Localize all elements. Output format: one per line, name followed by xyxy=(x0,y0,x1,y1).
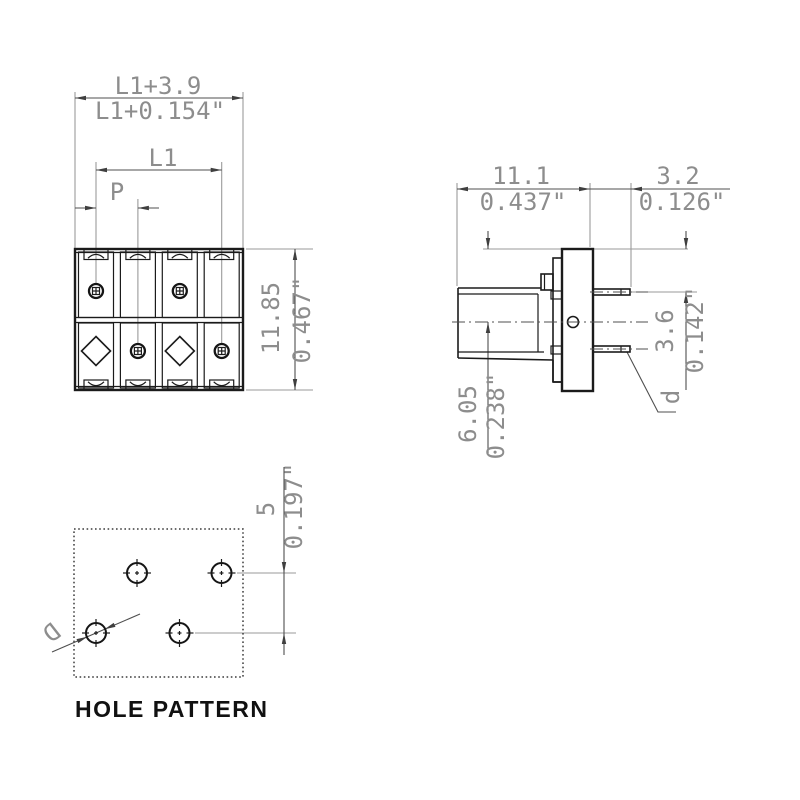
screw-icon xyxy=(131,344,145,358)
dimension-texts: L1+3.9 L1+0.154" L1 P 11.85 0.467" 11.1 … xyxy=(37,72,726,647)
drill-hole xyxy=(123,559,151,587)
dim-hole-row-spacing-mm: 5 xyxy=(252,502,280,516)
diamond-marker xyxy=(165,337,194,366)
dim-side-depth-mm: 11.1 xyxy=(492,162,550,190)
dim-front-pole-span: L1 xyxy=(149,144,178,172)
shroud xyxy=(458,288,562,382)
dim-side-pin-length-mm: 3.2 xyxy=(656,162,699,190)
drill-hole xyxy=(82,619,110,647)
arrowheads xyxy=(75,96,688,644)
dim-front-pitch: P xyxy=(110,178,124,206)
screw-icon xyxy=(215,344,229,358)
screw-icon xyxy=(89,284,103,298)
dim-front-height-in: 0.467" xyxy=(288,277,316,364)
flange-plate xyxy=(553,258,562,382)
board-outline xyxy=(74,529,243,677)
drill-hole xyxy=(208,559,236,587)
dim-front-total-width-mm: L1+3.9 xyxy=(115,72,202,100)
side-view xyxy=(452,249,648,391)
wire-clamp-notches-top xyxy=(84,250,234,260)
dim-side-pin-offset-mm: 3.6 xyxy=(651,309,679,352)
dim-side-axis-height-in: 0.238" xyxy=(482,373,510,460)
screw-icon xyxy=(173,284,187,298)
view-caption: HOLE PATTERN xyxy=(75,696,268,722)
dim-side-depth-in: 0.437" xyxy=(480,188,567,216)
drill-hole xyxy=(166,619,194,647)
dim-front-height-mm: 11.85 xyxy=(257,282,285,354)
dim-side-pin-offset-in: 0.142" xyxy=(681,287,709,374)
hole-diameter-label: D xyxy=(37,617,66,648)
dim-side-axis-height-mm: 6.05 xyxy=(454,385,482,443)
diamond-marker xyxy=(82,337,111,366)
pin-diameter-label: d xyxy=(657,390,685,404)
technical-drawing: L1+3.9 L1+0.154" L1 P 11.85 0.467" 11.1 … xyxy=(0,0,800,800)
pole-cells xyxy=(79,252,240,388)
hole-pattern-view xyxy=(74,529,243,677)
dim-front-total-width-in: L1+0.154" xyxy=(95,97,225,125)
extension-lines xyxy=(75,92,697,633)
front-body-outline xyxy=(75,249,243,390)
dim-hole-row-spacing-in: 0.197" xyxy=(280,463,308,550)
dimension-lines xyxy=(52,98,730,655)
front-view xyxy=(75,249,243,390)
latch-bump xyxy=(541,274,553,290)
dim-side-pin-length-in: 0.126" xyxy=(639,188,726,216)
drawing-page: L1+3.9 L1+0.154" L1 P 11.85 0.467" 11.1 … xyxy=(0,0,800,800)
